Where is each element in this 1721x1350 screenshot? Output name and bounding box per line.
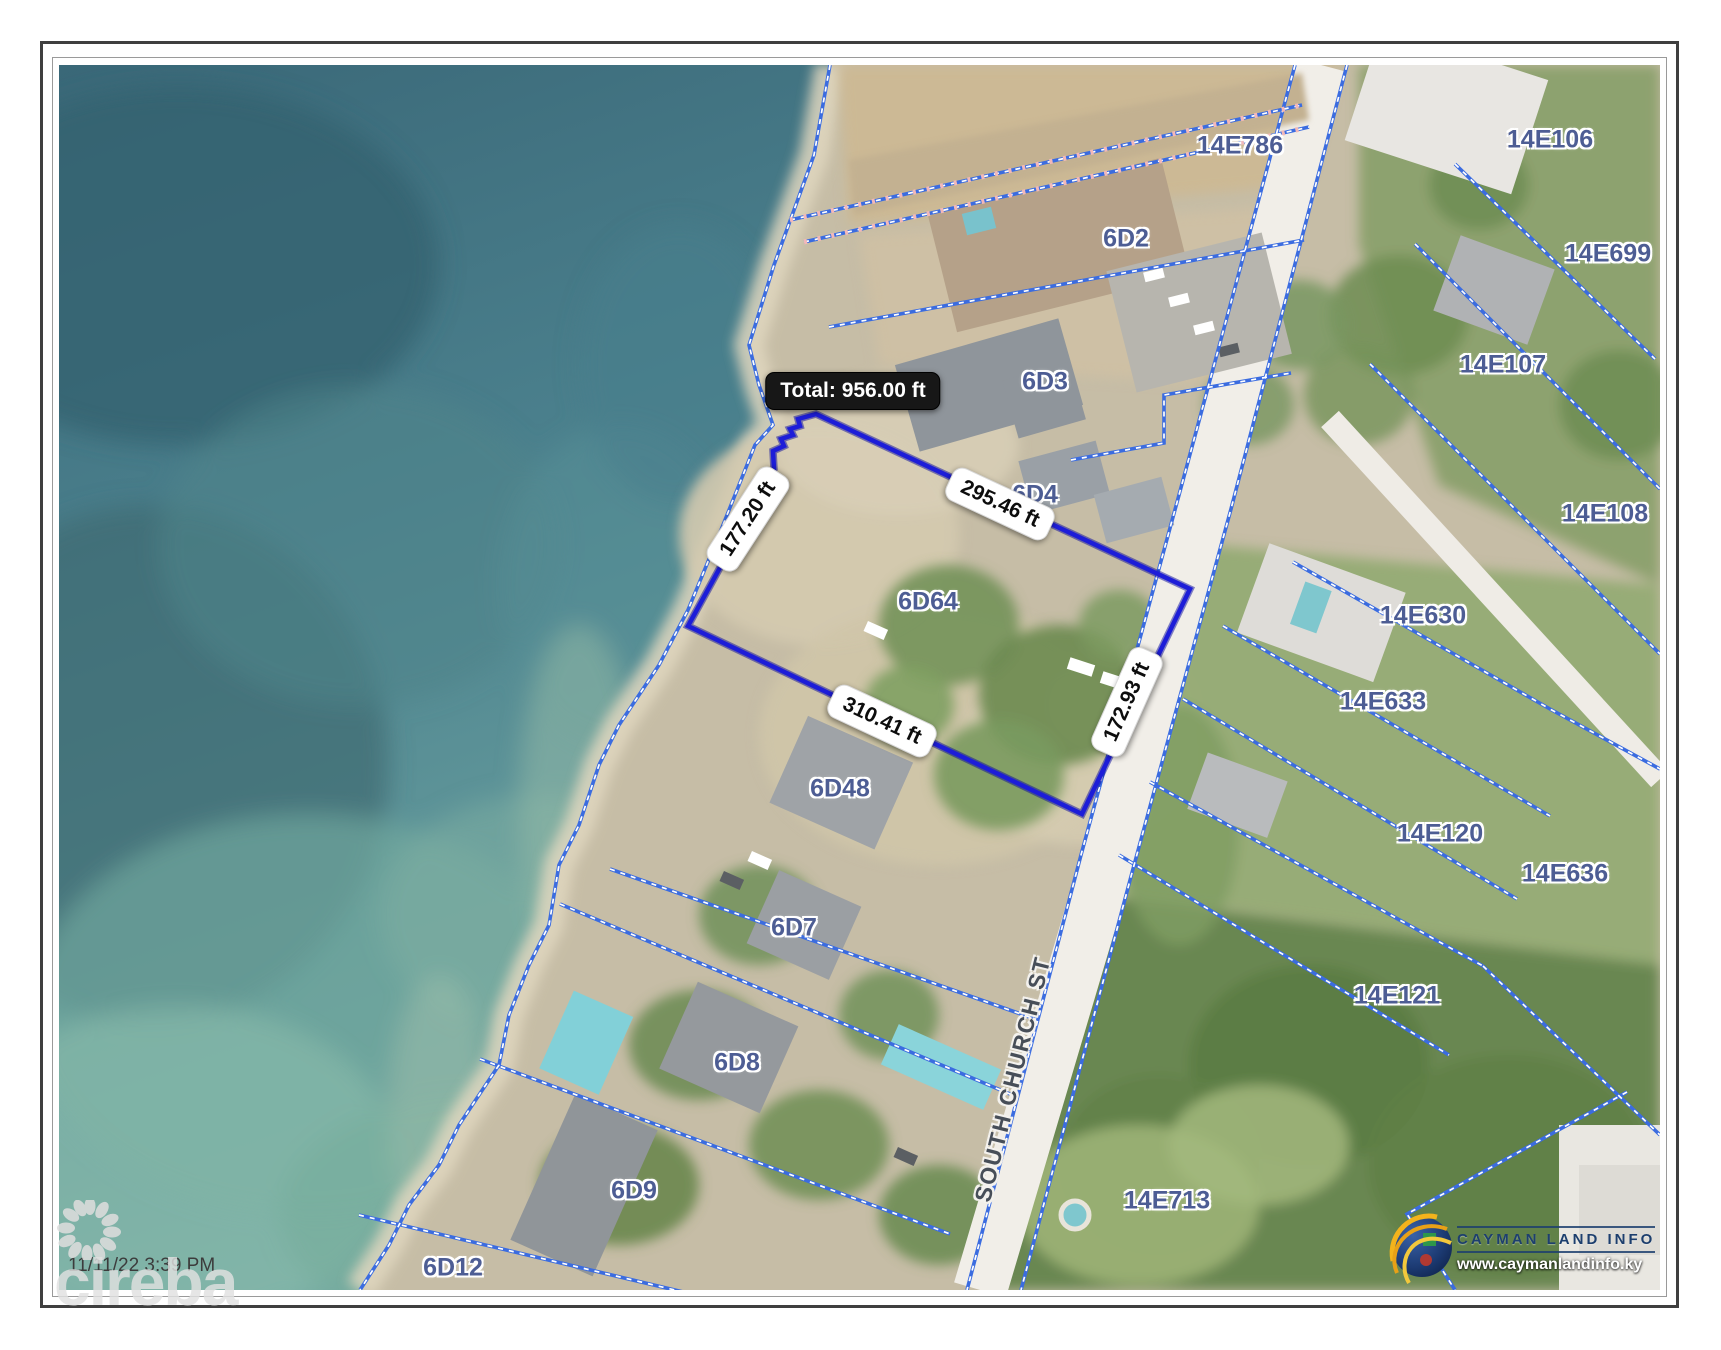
measure-label-31041: 310.41 ft [824,681,941,761]
cireba-watermark: cireba [52,1200,122,1265]
logo-website: www.caymanlandinfo.ky [1457,1256,1655,1274]
map-report-page: 14E7866D26D36D46D646D486D76D86D96D1214E7… [0,0,1721,1350]
logo-rule-top [1457,1226,1655,1228]
measurement-total-tooltip: Total: 956.00 ft [765,372,940,410]
globe-icon [1385,1203,1459,1289]
logo-title: CAYMAN LAND INFO [1457,1231,1655,1248]
measure-label-17293: 172.93 ft [1088,643,1166,760]
map-canvas[interactable]: 14E7866D26D36D46D646D486D76D86D96D1214E7… [59,65,1660,1290]
measure-label-17720: 177.20 ft [702,462,793,576]
measure-label-29546: 295.46 ft [942,464,1059,544]
logo-rule-bottom [1457,1251,1655,1253]
measurement-labels-layer: 177.20 ft295.46 ft172.93 ft310.41 ft [59,65,1660,1290]
cayman-land-info-logo: CAYMAN LAND INFO www.caymanlandinfo.ky [1385,1203,1655,1289]
cireba-brand-text: cireba [54,1244,236,1320]
